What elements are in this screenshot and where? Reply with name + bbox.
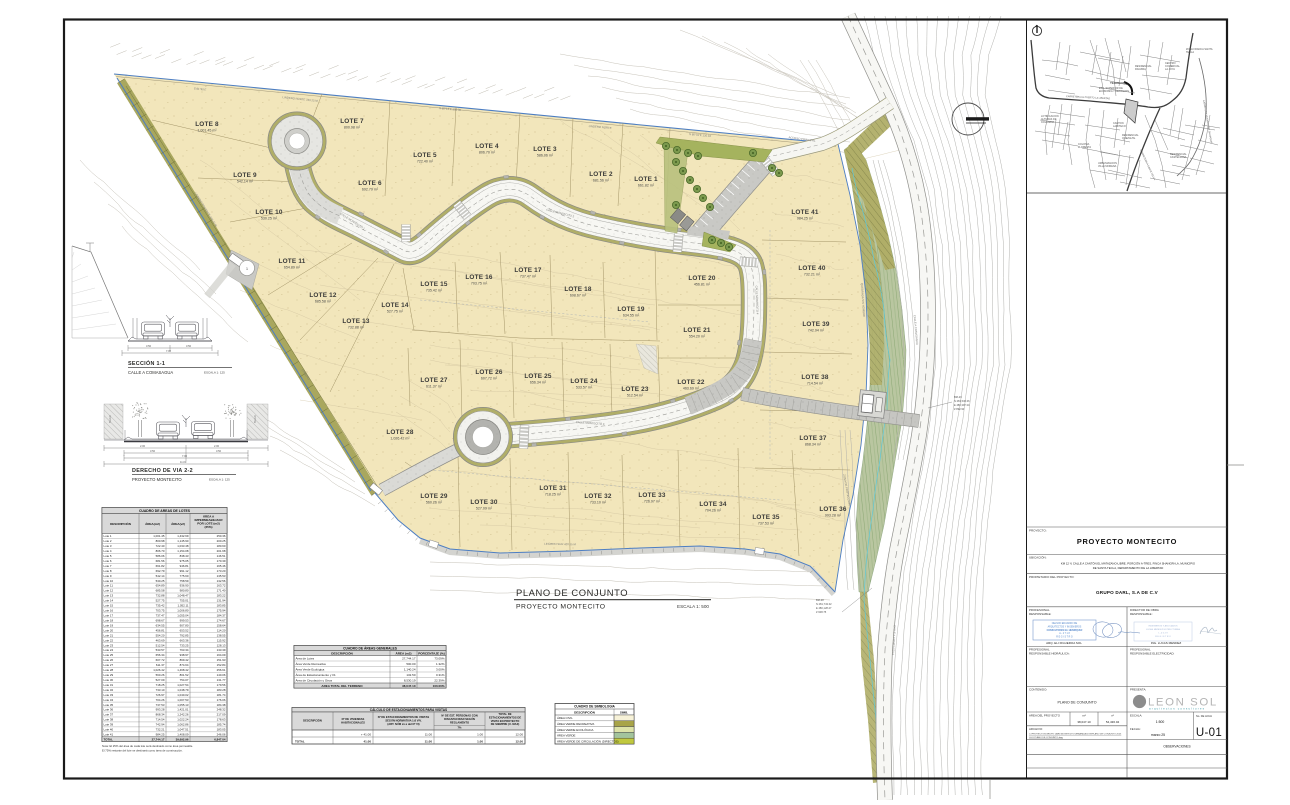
svg-text:BM-28: BM-28 xyxy=(816,598,824,602)
svg-text:1,026.42 m²: 1,026.42 m² xyxy=(390,437,410,441)
svg-text:E 480,397.34: E 480,397.34 xyxy=(954,403,970,407)
svg-text:530.25 m²: 530.25 m² xyxy=(261,217,278,221)
svg-text:TOTAL DE: TOTAL DE xyxy=(498,712,511,716)
svg-text:754.07: 754.07 xyxy=(180,678,189,682)
svg-text:TALUD: TALUD xyxy=(109,415,112,423)
svg-text:Lote 27: Lote 27 xyxy=(104,663,114,667)
svg-text:ÁREA VERDE RECREATIVA: ÁREA VERDE RECREATIVA xyxy=(557,722,594,726)
svg-text:LUCAS MENDEZ ESTRUCTURAS: LUCAS MENDEZ ESTRUCTURAS xyxy=(1146,628,1181,631)
svg-text:LOTE 19: LOTE 19 xyxy=(617,306,645,313)
svg-text:7.00: 7.00 xyxy=(182,454,188,458)
svg-text:171.40: 171.40 xyxy=(217,589,226,593)
svg-text:737.53: 737.53 xyxy=(156,703,165,707)
svg-text:100.00%: 100.00% xyxy=(433,684,445,688)
svg-text:800.98 m²: 800.98 m² xyxy=(344,126,361,130)
svg-text:654.89 m²: 654.89 m² xyxy=(284,266,301,270)
svg-text:N 281,530.06: N 281,530.06 xyxy=(954,399,970,403)
svg-text:Área de Lotes: Área de Lotes xyxy=(296,657,315,661)
svg-text:554.20 m²: 554.20 m² xyxy=(689,335,706,339)
svg-text:Lote 11: Lote 11 xyxy=(104,584,114,588)
svg-text:U-01: U-01 xyxy=(1196,727,1222,739)
svg-text:250.36: 250.36 xyxy=(217,534,226,538)
svg-text:533.57: 533.57 xyxy=(156,648,165,652)
svg-text:AREA DEL PROYECTO: AREA DEL PROYECTO xyxy=(1029,714,1061,718)
svg-text:1,408.09: 1,408.09 xyxy=(177,733,189,737)
svg-text:140.06: 140.06 xyxy=(217,673,226,677)
svg-text:993.28 m²: 993.28 m² xyxy=(825,514,842,518)
svg-text:LOTE 30: LOTE 30 xyxy=(470,499,498,506)
svg-text:775.60: 775.60 xyxy=(180,574,189,578)
svg-text:179.56: 179.56 xyxy=(217,683,226,687)
svg-text:VILLA MORENA: VILLA MORENA xyxy=(1098,165,1117,168)
svg-text:Lote 5: Lote 5 xyxy=(104,554,112,558)
svg-text:41.00: 41.00 xyxy=(363,739,371,743)
svg-text:733.10 m²: 733.10 m² xyxy=(590,501,607,505)
svg-text:ESCALA 1: 500: ESCALA 1: 500 xyxy=(677,604,709,609)
svg-text:722.40: 722.40 xyxy=(156,544,165,548)
svg-text:LOTE 21: LOTE 21 xyxy=(683,327,711,334)
svg-text:1,062.86: 1,062.86 xyxy=(177,723,189,727)
svg-text:Lote 1: Lote 1 xyxy=(104,534,112,538)
svg-text:663.36: 663.36 xyxy=(180,638,189,642)
svg-text:737.47 m²: 737.47 m² xyxy=(520,275,537,279)
svg-text:DESCRIPCIÓN: DESCRIPCIÓN xyxy=(331,651,353,656)
svg-text:1,468.42: 1,468.42 xyxy=(177,668,189,672)
svg-text:183.28: 183.28 xyxy=(217,688,226,692)
svg-text:LOTE 20: LOTE 20 xyxy=(688,275,716,282)
svg-text:Z 908.75: Z 908.75 xyxy=(816,610,827,614)
svg-text:1,140.24: 1,140.24 xyxy=(404,668,416,672)
svg-text:27,744.17: 27,744.17 xyxy=(152,737,165,741)
svg-text:1,055.13: 1,055.13 xyxy=(177,703,189,707)
svg-text:722.40 m²: 722.40 m² xyxy=(417,160,434,164)
svg-text:698.67 m²: 698.67 m² xyxy=(570,294,587,298)
svg-text:RESPONSABLE HIDRÁULICA:: RESPONSABLE HIDRÁULICA: xyxy=(1029,651,1070,655)
svg-text:RESPONSABLE :: RESPONSABLE : xyxy=(1130,612,1153,616)
svg-text:KM 12 ½ CALLE A CANTÓN EL MATA: KM 12 ½ CALLE A CANTÓN EL MATAZANO-LIBRE… xyxy=(1061,561,1196,566)
svg-text:527.75: 527.75 xyxy=(156,599,165,603)
svg-text:3.50: 3.50 xyxy=(216,449,222,453)
svg-text:PROYECTO MONTECITO: PROYECTO MONTECITO xyxy=(132,477,182,482)
svg-text:ÁREA CIVIL: ÁREA CIVIL xyxy=(557,716,573,720)
svg-text:560.26 m²: 560.26 m² xyxy=(426,501,443,505)
svg-text:560.26: 560.26 xyxy=(156,673,165,677)
svg-text:183.05: 183.05 xyxy=(217,728,226,732)
svg-text:LOTE 3: LOTE 3 xyxy=(533,146,557,153)
svg-text:RESPONSABLE:: RESPONSABLE: xyxy=(1029,612,1052,616)
svg-text:DESCRIPCIÓN: DESCRIPCIÓN xyxy=(574,710,595,715)
svg-text:LOTE 33: LOTE 33 xyxy=(638,492,666,499)
svg-text:607.72: 607.72 xyxy=(156,658,165,662)
svg-text:530.25: 530.25 xyxy=(156,579,165,583)
svg-text:527.09 m²: 527.09 m² xyxy=(476,507,493,511)
svg-text:527.09: 527.09 xyxy=(156,678,165,682)
svg-text:999.53: 999.53 xyxy=(180,618,189,622)
svg-text:LAMITECO: LAMITECO xyxy=(1113,125,1126,128)
svg-text:Lote 18: Lote 18 xyxy=(104,618,114,622)
svg-text:Área Verde Ecológica: Área Verde Ecológica xyxy=(296,668,325,672)
svg-text:LOTE 29: LOTE 29 xyxy=(420,493,448,500)
svg-text:TERRENO: TERRENO xyxy=(1110,81,1126,85)
svg-text:165.46: 165.46 xyxy=(217,564,226,568)
svg-text:984.25 m²: 984.25 m² xyxy=(797,217,814,221)
svg-text:180.60: 180.60 xyxy=(217,544,226,548)
svg-text:v²: v² xyxy=(1111,714,1113,718)
svg-text:Lote 31: Lote 31 xyxy=(104,683,114,687)
svg-text:181.74: 181.74 xyxy=(217,693,226,697)
svg-text:703.75: 703.75 xyxy=(156,609,165,613)
svg-text:LOTE 26: LOTE 26 xyxy=(475,369,503,376)
svg-text:E 480,128.47: E 480,128.47 xyxy=(816,606,832,610)
svg-text:LOTE 1: LOTE 1 xyxy=(634,176,658,183)
svg-text:INGENIEROS Y ASOCIADOS: INGENIEROS Y ASOCIADOS xyxy=(1148,625,1178,628)
svg-text:755.01: 755.01 xyxy=(180,599,189,603)
svg-text:611.37 m²: 611.37 m² xyxy=(426,385,443,389)
svg-text:Lote 2: Lote 2 xyxy=(104,539,112,543)
svg-text:634.55 m²: 634.55 m² xyxy=(623,314,640,318)
svg-text:1:500: 1:500 xyxy=(1156,720,1165,724)
svg-text:Lote 34: Lote 34 xyxy=(104,698,114,702)
svg-text:869.42: 869.42 xyxy=(180,658,189,662)
svg-text:ÁREA (m2): ÁREA (m2) xyxy=(395,651,411,656)
svg-text:CÁLCULO DE ESTACIONAMIENTOS PA: CÁLCULO DE ESTACIONAMIENTOS PARA VISITAS xyxy=(370,707,447,712)
svg-text:LOTE 18: LOTE 18 xyxy=(564,286,592,293)
svg-text:Lote 22: Lote 22 xyxy=(104,638,114,642)
svg-text:LOTE 17: LOTE 17 xyxy=(514,267,542,274)
svg-text:201.68: 201.68 xyxy=(217,549,226,553)
svg-text:698.67: 698.67 xyxy=(156,618,165,622)
svg-text:542.14: 542.14 xyxy=(156,574,165,578)
svg-text:256.61: 256.61 xyxy=(217,668,226,672)
svg-text:Lote 40: Lote 40 xyxy=(104,728,114,732)
svg-text:792.85: 792.85 xyxy=(180,633,189,637)
svg-text:Lote 20: Lote 20 xyxy=(104,628,114,632)
svg-text:ÁREA VERDE ECOLÓGICA: ÁREA VERDE ECOLÓGICA xyxy=(557,727,594,732)
svg-text:158.64: 158.64 xyxy=(217,623,226,627)
svg-text:463.69: 463.69 xyxy=(156,638,165,642)
svg-text:RESPONSABLE ELECTRICIDAD:: RESPONSABLE ELECTRICIDAD: xyxy=(1130,651,1175,655)
svg-text:Lote 32: Lote 32 xyxy=(104,688,114,692)
svg-text:ÁREA VERDE DE CIRCULACIÓN (DIR: ÁREA VERDE DE CIRCULACIÓN (DIRECTOS) xyxy=(557,738,619,743)
svg-text:1,145.90: 1,145.90 xyxy=(177,539,189,543)
svg-text:PROYECTO:: PROYECTO: xyxy=(1029,529,1047,533)
svg-text:463.69 m²: 463.69 m² xyxy=(683,387,700,391)
svg-text:LOTE 31: LOTE 31 xyxy=(539,485,567,492)
svg-text:m²: m² xyxy=(1082,714,1085,718)
svg-text:8,530.19: 8,530.19 xyxy=(404,679,416,683)
svg-text:735.42 m²: 735.42 m² xyxy=(426,289,443,293)
svg-text:arquitectos consultores: arquitectos consultores xyxy=(1149,707,1205,711)
svg-text:ING. LUCAS MENDEZ: ING. LUCAS MENDEZ xyxy=(1151,641,1182,645)
svg-text:685.58 m²: 685.58 m² xyxy=(315,300,332,304)
svg-text:LOTE 22: LOTE 22 xyxy=(677,379,705,386)
svg-text:114.20: 114.20 xyxy=(217,628,226,632)
svg-text:LOTE 5: LOTE 5 xyxy=(413,152,437,159)
svg-text:1,052.11: 1,052.11 xyxy=(177,604,188,608)
svg-text:726.97: 726.97 xyxy=(156,693,165,697)
svg-text:7.00: 7.00 xyxy=(166,349,172,353)
svg-text:PROYECTO MONTECITO: PROYECTO MONTECITO xyxy=(1077,537,1177,546)
svg-text:170.39: 170.39 xyxy=(217,559,226,563)
svg-text:Lote 3: Lote 3 xyxy=(104,544,112,548)
svg-text:656.34: 656.34 xyxy=(156,653,165,657)
svg-text:No. DE HOJA: No. DE HOJA xyxy=(1196,714,1212,718)
svg-text:CUADRO DE AREAS DE LOTES: CUADRO DE AREAS DE LOTES xyxy=(139,509,191,513)
svg-text:39,692.96: 39,692.96 xyxy=(176,737,189,741)
svg-text:11.00: 11.00 xyxy=(425,739,433,743)
svg-text:HABITACIONALES: HABITACIONALES xyxy=(341,720,365,724)
svg-text:LOTE 41: LOTE 41 xyxy=(791,209,819,216)
svg-text:UBICACIÓN:: UBICACIÓN: xyxy=(1029,555,1047,560)
svg-text:A - 2 7 1 8: A - 2 7 1 8 xyxy=(1059,632,1070,635)
svg-text:703.75 m²: 703.75 m² xyxy=(471,282,488,286)
svg-text:LOTE 9: LOTE 9 xyxy=(233,172,257,179)
svg-text:611.37: 611.37 xyxy=(156,663,165,667)
svg-text:LOTE 34: LOTE 34 xyxy=(699,501,727,508)
svg-text:Lote 26: Lote 26 xyxy=(104,658,114,662)
svg-text:Lote 16: Lote 16 xyxy=(104,609,114,613)
svg-text:38,047.10: 38,047.10 xyxy=(402,684,416,688)
svg-text:LOTE 12: LOTE 12 xyxy=(309,292,337,299)
svg-text:217.09: 217.09 xyxy=(217,713,226,717)
svg-text:U-01 PLANO DE CONJUNTO.dwg: U-01 PLANO DE CONJUNTO.dwg xyxy=(1029,736,1064,739)
svg-text:704.26 m²: 704.26 m² xyxy=(705,509,722,513)
svg-text:LOTE 11: LOTE 11 xyxy=(279,258,306,265)
svg-text:+ 41.00: + 41.00 xyxy=(361,732,371,736)
svg-text:533.57 m²: 533.57 m² xyxy=(576,386,593,390)
svg-text:11.00: 11.00 xyxy=(180,460,187,464)
svg-text:175.94: 175.94 xyxy=(217,609,226,613)
svg-text:115.92: 115.92 xyxy=(217,638,226,642)
svg-text:Lote 9: Lote 9 xyxy=(104,574,112,578)
svg-text:653.52: 653.52 xyxy=(180,628,189,632)
svg-text:Área de Circulación y Otros: Área de Circulación y Otros xyxy=(296,679,333,683)
svg-text:732.21 m²: 732.21 m² xyxy=(804,273,821,277)
svg-text:1,048.79: 1,048.79 xyxy=(177,688,189,692)
svg-text:Nº DE VIVIENDAS: Nº DE VIVIENDAS xyxy=(342,717,365,721)
svg-text:178.63: 178.63 xyxy=(217,718,226,722)
svg-text:806.70: 806.70 xyxy=(156,549,165,553)
svg-text:Lote 23: Lote 23 xyxy=(104,643,114,647)
svg-text:758.59: 758.59 xyxy=(180,579,189,583)
svg-text:LOTE 10: LOTE 10 xyxy=(255,209,283,216)
svg-text:Lote 35: Lote 35 xyxy=(104,703,114,707)
svg-text:Lote 29: Lote 29 xyxy=(104,673,114,677)
svg-text:654.89: 654.89 xyxy=(156,584,165,588)
svg-text:ESCALA 1: 125: ESCALA 1: 125 xyxy=(204,371,225,375)
svg-text:LOTE 27: LOTE 27 xyxy=(420,377,448,384)
svg-text:128.13: 128.13 xyxy=(217,643,226,647)
svg-text:PRESENTA:: PRESENTA: xyxy=(1130,688,1146,692)
svg-text:176.06: 176.06 xyxy=(217,698,226,702)
svg-text:LOTE 7: LOTE 7 xyxy=(340,118,364,125)
svg-text:735.42: 735.42 xyxy=(156,604,165,608)
svg-text:PROYECTO MONTECITO: PROYECTO MONTECITO xyxy=(516,604,606,611)
svg-text:FLORESTA: FLORESTA xyxy=(1078,146,1091,149)
svg-text:946.81: 946.81 xyxy=(180,564,189,568)
svg-text:456.81 m²: 456.81 m² xyxy=(694,283,711,287)
svg-text:Lote 21: Lote 21 xyxy=(104,633,114,637)
svg-text:Lote 7: Lote 7 xyxy=(104,564,112,568)
svg-text:732.21: 732.21 xyxy=(156,728,165,732)
svg-text:PLANO DE CONJUNTO: PLANO DE CONJUNTO xyxy=(1057,701,1096,705)
svg-text:1,048.47: 1,048.47 xyxy=(177,594,189,598)
svg-text:661.82 m²: 661.82 m² xyxy=(638,184,655,188)
svg-text:LOTE 2: LOTE 2 xyxy=(589,171,613,178)
svg-text:ESCALA:: ESCALA: xyxy=(1130,714,1142,718)
svg-text:Nota: El 25% del área de cada: Nota: El 25% del área de cada lote será … xyxy=(102,744,193,748)
svg-text:1,033.48: 1,033.48 xyxy=(177,544,189,548)
svg-text:LOTE 14: LOTE 14 xyxy=(381,302,409,309)
svg-text:200.25: 200.25 xyxy=(217,539,226,543)
svg-text:Lote 30: Lote 30 xyxy=(104,678,114,682)
svg-text:704.26: 704.26 xyxy=(156,698,165,702)
svg-text:LOTE 40: LOTE 40 xyxy=(798,265,826,272)
svg-text:ESCALA 1: 125: ESCALA 1: 125 xyxy=(209,478,230,482)
svg-text:714.54: 714.54 xyxy=(156,718,165,722)
svg-text:BM-29: BM-29 xyxy=(954,395,962,399)
svg-text:N 281,743.02: N 281,743.02 xyxy=(816,602,832,606)
svg-text:PALMIRA: PALMIRA xyxy=(1135,68,1146,71)
svg-text:LOTE 4: LOTE 4 xyxy=(475,143,499,150)
svg-text:ARQUITECTOS Y INGENIEROS: ARQUITECTOS Y INGENIEROS xyxy=(1048,625,1082,628)
svg-text:500.00: 500.00 xyxy=(406,662,416,666)
svg-text:LOTE 8: LOTE 8 xyxy=(195,121,219,128)
svg-text:OBSERVACIONES: OBSERVACIONES xyxy=(1163,745,1190,749)
svg-text:ARQ. ELI FIGUEROA SOL: ARQ. ELI FIGUEROA SOL xyxy=(1046,641,1082,645)
svg-text:1,242.26: 1,242.26 xyxy=(177,713,189,717)
svg-text:LOTE 13: LOTE 13 xyxy=(342,318,370,325)
svg-text:1.32%: 1.32% xyxy=(436,662,445,666)
svg-text:714.54 m²: 714.54 m² xyxy=(807,382,824,386)
svg-text:Nº DE ESTACIONAMIENTOS DE VISI: Nº DE ESTACIONAMIENTOS DE VISITAS xyxy=(378,715,430,719)
svg-text:CONSULTORES ELI HENRIQUEZ: CONSULTORES ELI HENRIQUEZ xyxy=(1047,630,1083,632)
svg-text:3.50: 3.50 xyxy=(186,344,192,348)
svg-text:11.00: 11.00 xyxy=(425,732,433,736)
svg-text:1,432.69: 1,432.69 xyxy=(177,534,189,538)
svg-text:1,026.42: 1,026.42 xyxy=(153,668,165,672)
svg-text:Lote 6: Lote 6 xyxy=(104,559,112,563)
svg-text:ARCHIVO:: ARCHIVO: xyxy=(1029,727,1043,731)
svg-text:1,047.51: 1,047.51 xyxy=(177,728,189,732)
svg-text:COLOMBIA: COLOMBIA xyxy=(1041,121,1055,124)
svg-text:132.56: 132.56 xyxy=(217,579,226,583)
svg-text:ÁREA VERDE: ÁREA VERDE xyxy=(557,734,576,738)
svg-text:975.05: 975.05 xyxy=(180,559,189,563)
svg-text:0.31%: 0.31% xyxy=(436,673,445,677)
svg-text:733.10: 733.10 xyxy=(156,688,165,692)
svg-text:LOTE 6: LOTE 6 xyxy=(358,180,382,187)
svg-text:Lote 28: Lote 28 xyxy=(104,668,114,672)
svg-text:LOTE 39: LOTE 39 xyxy=(802,321,830,328)
svg-text:3.50: 3.50 xyxy=(146,344,152,348)
svg-text:Lote 37: Lote 37 xyxy=(104,713,114,717)
svg-text:1,055.04: 1,055.04 xyxy=(177,614,189,618)
svg-text:164.09: 164.09 xyxy=(217,653,226,657)
svg-text:Área Verde Recreativa: Área Verde Recreativa xyxy=(296,662,327,666)
svg-text:LOTE 15: LOTE 15 xyxy=(420,281,448,288)
svg-text:131.77: 131.77 xyxy=(217,678,226,682)
svg-text:12.00: 12.00 xyxy=(515,732,523,736)
svg-text:163.72: 163.72 xyxy=(217,584,226,588)
svg-text:2.00: 2.00 xyxy=(140,444,146,448)
svg-text:Lote 10: Lote 10 xyxy=(104,579,114,583)
svg-text:PROPIETARIO DEL PROYECTO:: PROPIETARIO DEL PROYECTO: xyxy=(1029,575,1074,579)
svg-text:LOTE 36: LOTE 36 xyxy=(819,506,847,513)
svg-text:991.12: 991.12 xyxy=(180,569,189,573)
svg-text:3.00%: 3.00% xyxy=(436,668,445,672)
svg-text:732.88: 732.88 xyxy=(156,594,165,598)
svg-text:Lote 4: Lote 4 xyxy=(104,549,112,553)
svg-text:726.97 m²: 726.97 m² xyxy=(644,500,661,504)
svg-text:54,436.04: 54,436.04 xyxy=(1106,720,1120,724)
svg-text:Lote 25: Lote 25 xyxy=(104,653,114,657)
svg-text:Lote 36: Lote 36 xyxy=(104,708,114,712)
svg-text:800.98: 800.98 xyxy=(156,539,165,543)
svg-text:838.43: 838.43 xyxy=(180,554,189,558)
svg-text:980.80: 980.80 xyxy=(180,589,189,593)
svg-text:22.39%: 22.39% xyxy=(434,679,445,683)
svg-text:681.56 m²: 681.56 m² xyxy=(593,179,610,183)
svg-text:PLANO DE CONJUNTO: PLANO DE CONJUNTO xyxy=(516,587,628,598)
svg-text:(25%): (25%) xyxy=(204,525,212,529)
svg-text:DE SIEMPRE (U. MAX): DE SIEMPRE (U. MAX) xyxy=(491,722,520,726)
svg-text:1.00: 1.00 xyxy=(477,739,483,743)
svg-text:692.79 m²: 692.79 m² xyxy=(362,188,379,192)
svg-text:2.00: 2.00 xyxy=(214,444,220,448)
svg-text:GRUPO DARL, S.A DE C.V: GRUPO DARL, S.A DE C.V xyxy=(1096,590,1159,595)
svg-text:184.38: 184.38 xyxy=(217,703,226,707)
svg-text:135.53: 135.53 xyxy=(217,574,226,578)
svg-text:151.93: 151.93 xyxy=(217,658,226,662)
svg-text:152.84: 152.84 xyxy=(217,663,226,667)
svg-text:Lote 19: Lote 19 xyxy=(104,623,114,627)
svg-text:Lote 14: Lote 14 xyxy=(104,599,114,603)
svg-text:Z 892.90: Z 892.90 xyxy=(954,407,965,411)
svg-text:Lote 13: Lote 13 xyxy=(104,594,114,598)
svg-text:174.67: 174.67 xyxy=(217,618,226,622)
svg-text:733.25: 733.25 xyxy=(180,643,189,647)
svg-text:993.28: 993.28 xyxy=(156,708,165,712)
svg-text:131.94: 131.94 xyxy=(217,599,226,603)
svg-text:LOTE 28: LOTE 28 xyxy=(386,429,414,436)
svg-text:1,006.80: 1,006.80 xyxy=(177,609,189,613)
svg-text:ÁREA(m2): ÁREA(m2) xyxy=(145,521,160,526)
svg-text:806.70 m²: 806.70 m² xyxy=(479,151,496,155)
svg-text:LOTE 32: LOTE 32 xyxy=(584,493,612,500)
svg-text:AREA TOTAL DEL TERRENO: AREA TOTAL DEL TERRENO xyxy=(321,684,363,688)
svg-text:CUADRO DE ÁREAS GENERALES: CUADRO DE ÁREAS GENERALES xyxy=(343,646,398,651)
svg-text:R E G I S T R O: R E G I S T R O xyxy=(1155,636,1171,638)
svg-text:Lote 15: Lote 15 xyxy=(104,604,114,608)
svg-text:801.52: 801.52 xyxy=(180,673,189,677)
svg-text:737.53 m²: 737.53 m² xyxy=(758,522,775,526)
svg-text:692.79: 692.79 xyxy=(156,569,165,573)
svg-text:607.72 m²: 607.72 m² xyxy=(481,377,498,381)
svg-text:512.54 m²: 512.54 m² xyxy=(627,394,644,398)
svg-text:542.14 m²: 542.14 m² xyxy=(237,180,254,184)
svg-text:185.74: 185.74 xyxy=(217,723,226,727)
svg-text:718.25 m²: 718.25 m² xyxy=(545,493,562,497)
svg-text:868.34: 868.34 xyxy=(156,713,165,717)
svg-text:874.64: 874.64 xyxy=(180,663,189,667)
svg-text:138.55: 138.55 xyxy=(217,633,226,637)
svg-text:1,007.53: 1,007.53 xyxy=(177,698,189,702)
svg-text:ECONOMIA Y NEGOCIOS: ECONOMIA Y NEGOCIOS xyxy=(1099,90,1129,93)
svg-text:7%: 7% xyxy=(458,726,462,730)
svg-text:38,047.10: 38,047.10 xyxy=(1077,720,1091,724)
svg-text:Lote 8: Lote 8 xyxy=(104,569,112,573)
